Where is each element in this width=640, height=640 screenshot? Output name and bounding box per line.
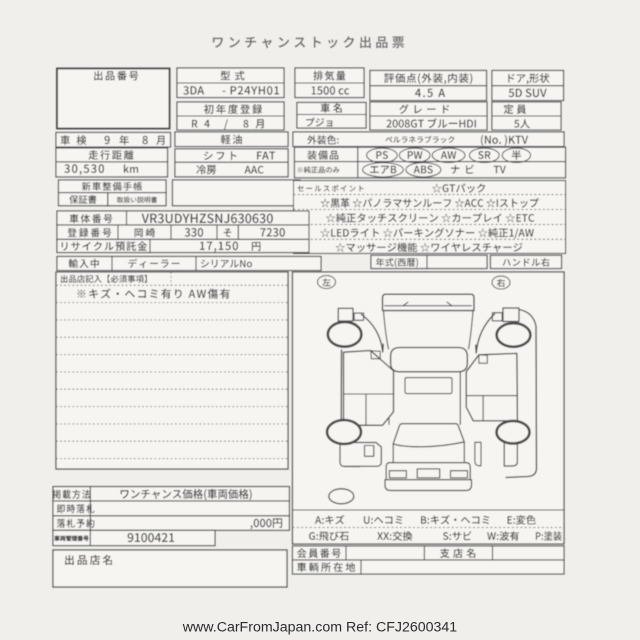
svg-text:www.CarFromJapan.com Ref: CFJ2: www.CarFromJapan.com Ref: CFJ2600341 [182, 620, 458, 636]
